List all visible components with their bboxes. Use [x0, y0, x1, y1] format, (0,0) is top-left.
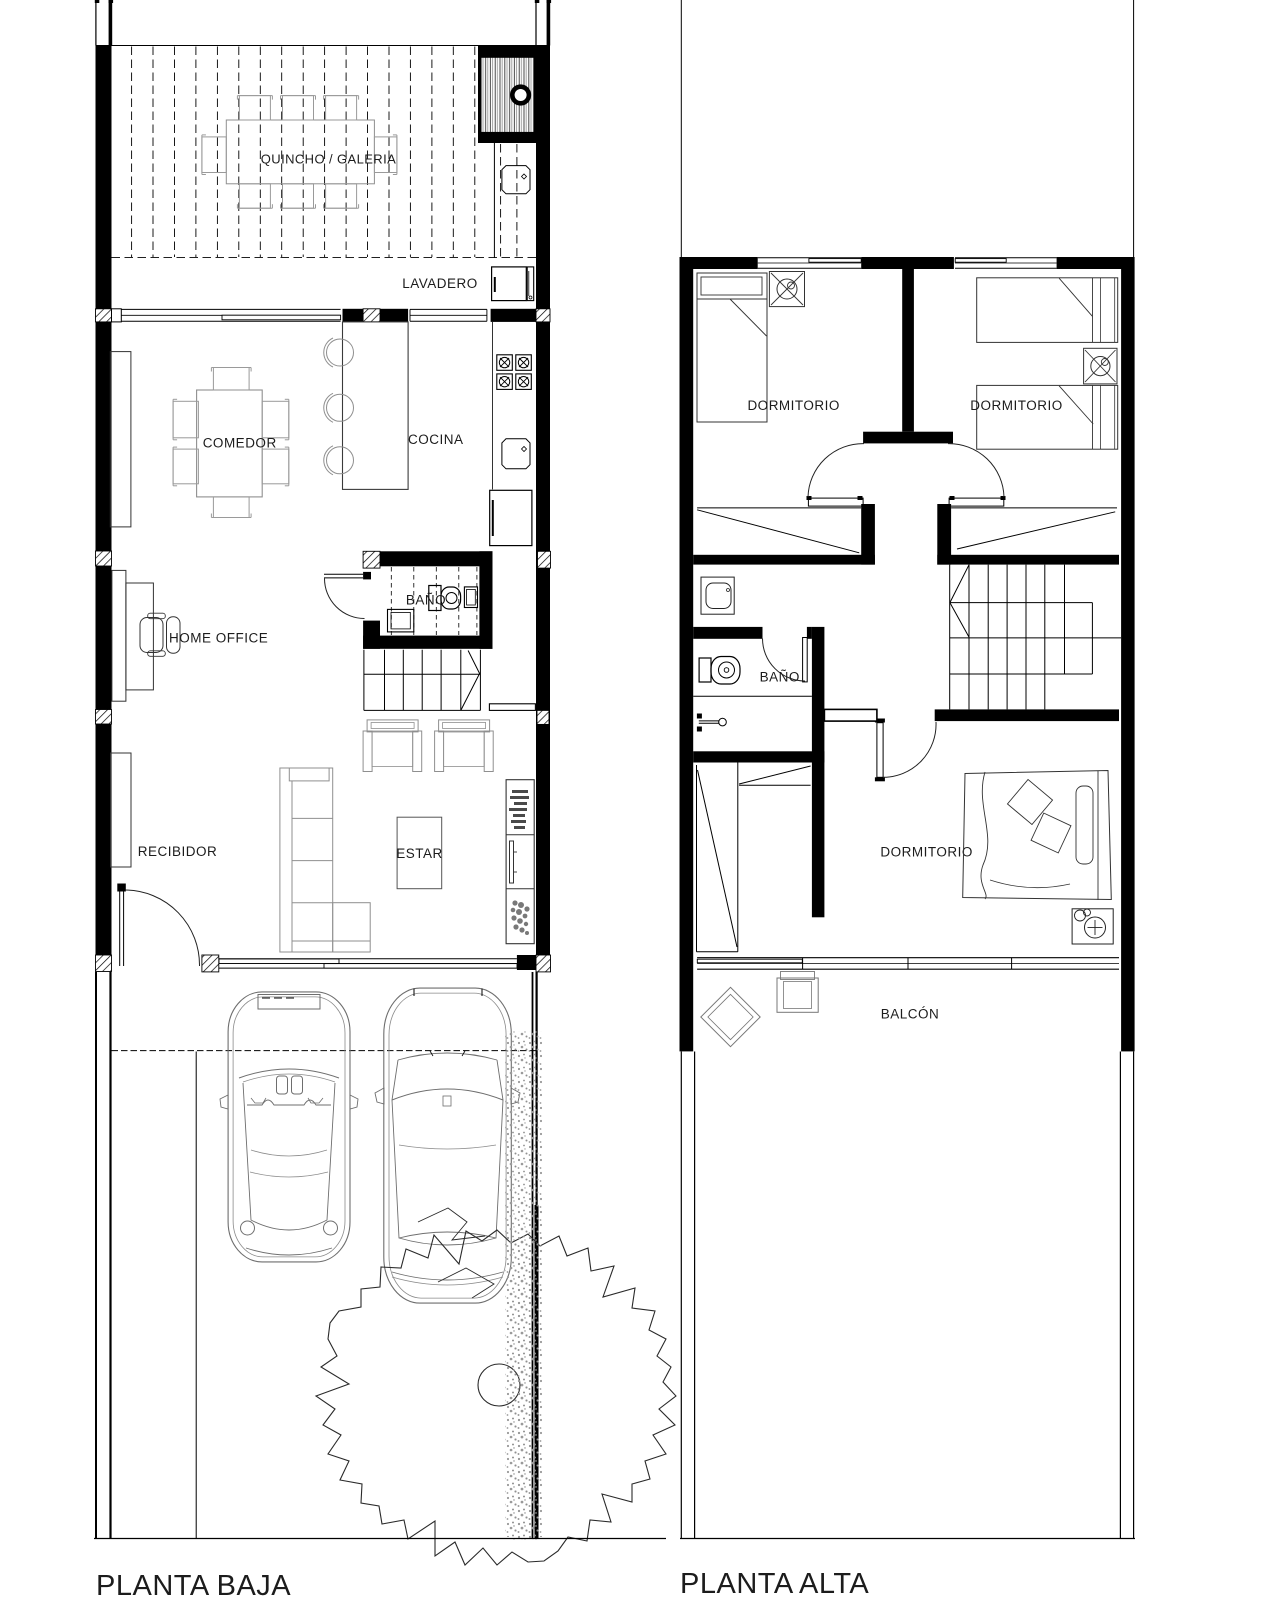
svg-text:COCINA: COCINA	[408, 432, 464, 447]
svg-text:BAÑO: BAÑO	[760, 670, 800, 685]
svg-text:DORMITORIO: DORMITORIO	[970, 398, 1063, 413]
svg-text:BALCÓN: BALCÓN	[881, 1007, 940, 1022]
svg-text:PLANTA ALTA: PLANTA ALTA	[680, 1568, 869, 1600]
svg-text:PLANTA BAJA: PLANTA BAJA	[96, 1570, 291, 1600]
svg-text:ESTAR: ESTAR	[396, 846, 443, 861]
svg-text:QUINCHO / GALERIA: QUINCHO / GALERIA	[261, 152, 396, 167]
svg-text:DORMITORIO: DORMITORIO	[880, 845, 973, 860]
svg-text:COMEDOR: COMEDOR	[203, 436, 277, 451]
svg-text:HOME OFFICE: HOME OFFICE	[169, 631, 268, 646]
svg-text:RECIBIDOR: RECIBIDOR	[138, 844, 218, 859]
svg-text:DORMITORIO: DORMITORIO	[747, 398, 840, 413]
svg-text:BAÑO: BAÑO	[406, 593, 446, 608]
svg-text:LAVADERO: LAVADERO	[402, 276, 478, 291]
